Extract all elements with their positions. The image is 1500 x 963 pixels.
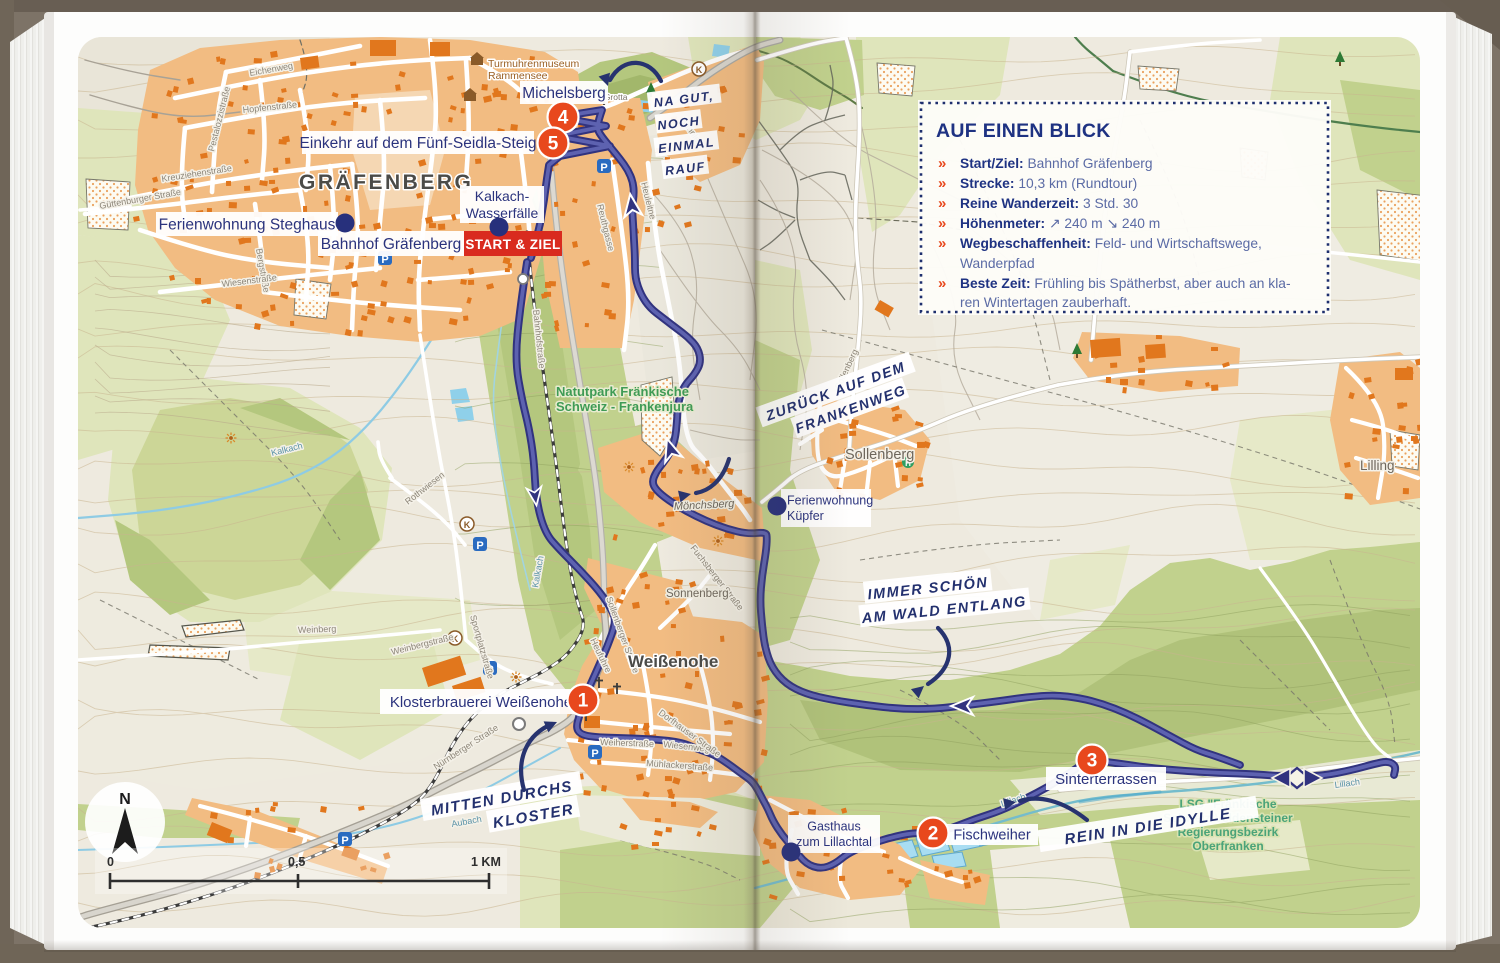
svg-text:3: 3 — [1087, 751, 1098, 772]
svg-text:P: P — [591, 748, 598, 760]
svg-text:Rammensee: Rammensee — [488, 70, 548, 82]
svg-text:»: » — [938, 155, 946, 172]
svg-text:Einkehr auf dem Fünf-Seidla-St: Einkehr auf dem Fünf-Seidla-Steig — [300, 135, 537, 152]
svg-text:Weiherstraße: Weiherstraße — [600, 737, 654, 749]
svg-text:1: 1 — [578, 691, 589, 712]
svg-text:N: N — [119, 791, 131, 808]
svg-text:2: 2 — [928, 824, 939, 845]
svg-text:»: » — [938, 215, 946, 232]
svg-text:P: P — [341, 835, 348, 847]
svg-text:GRÄFENBERG: GRÄFENBERG — [299, 171, 473, 194]
svg-text:»: » — [938, 175, 946, 192]
svg-text:4: 4 — [558, 108, 569, 129]
svg-text:1 KM: 1 KM — [471, 855, 501, 869]
svg-text:Turmuhrenmuseum: Turmuhrenmuseum — [488, 58, 579, 70]
svg-text:K: K — [464, 520, 471, 530]
svg-text:Sinterterrassen: Sinterterrassen — [1055, 771, 1157, 788]
svg-text:START & ZIEL: START & ZIEL — [465, 237, 560, 252]
svg-text:Strecke: 10,3 km (Rundtour): Strecke: 10,3 km (Rundtour) — [960, 176, 1137, 191]
svg-text:P: P — [476, 540, 483, 552]
svg-text:»: » — [938, 195, 946, 212]
svg-text:Höhenmeter: ↗ 240 m ↘ 240 m: Höhenmeter: ↗ 240 m ↘ 240 m — [960, 216, 1160, 231]
svg-text:Ferienwohnung Steghaus: Ferienwohnung Steghaus — [159, 216, 336, 233]
svg-text:ren Wintertagen zauberhaft.: ren Wintertagen zauberhaft. — [960, 295, 1131, 310]
svg-text:Bahnhof Gräfenberg: Bahnhof Gräfenberg — [321, 236, 461, 253]
svg-text:Kalkach-: Kalkach- — [475, 188, 530, 204]
svg-text:Klosterbrauerei Weißenohe: Klosterbrauerei Weißenohe — [390, 694, 572, 711]
svg-text:Reine Wanderzeit: 3 Std. 30: Reine Wanderzeit: 3 Std. 30 — [960, 196, 1138, 211]
svg-text:Sollenberg: Sollenberg — [845, 447, 914, 463]
svg-text:Fischweiher: Fischweiher — [953, 828, 1031, 844]
svg-text:Wanderpfad: Wanderpfad — [960, 256, 1035, 271]
svg-text:Oberfranken: Oberfranken — [1192, 839, 1263, 853]
svg-text:»: » — [938, 235, 946, 252]
svg-text:0,5: 0,5 — [288, 855, 305, 869]
svg-text:Beste Zeit: Frühling bis Späth: Beste Zeit: Frühling bis Spätherbst, abe… — [960, 276, 1291, 291]
svg-text:»: » — [938, 275, 946, 292]
svg-text:Lilling: Lilling — [1360, 458, 1395, 473]
svg-text:Michelsberg: Michelsberg — [522, 85, 606, 102]
svg-text:Start/Ziel: Bahnhof Gräfenberg: Start/Ziel: Bahnhof Gräfenberg — [960, 156, 1153, 171]
svg-text:0: 0 — [107, 855, 114, 869]
svg-text:5: 5 — [548, 134, 559, 155]
svg-text:Weinberg: Weinberg — [298, 624, 337, 635]
svg-text:P: P — [600, 162, 607, 174]
svg-text:AUF EINEN BLICK: AUF EINEN BLICK — [936, 120, 1111, 142]
svg-text:Wegbeschaffenheit: Feld- und W: Wegbeschaffenheit: Feld- und Wirtschafts… — [960, 236, 1262, 251]
